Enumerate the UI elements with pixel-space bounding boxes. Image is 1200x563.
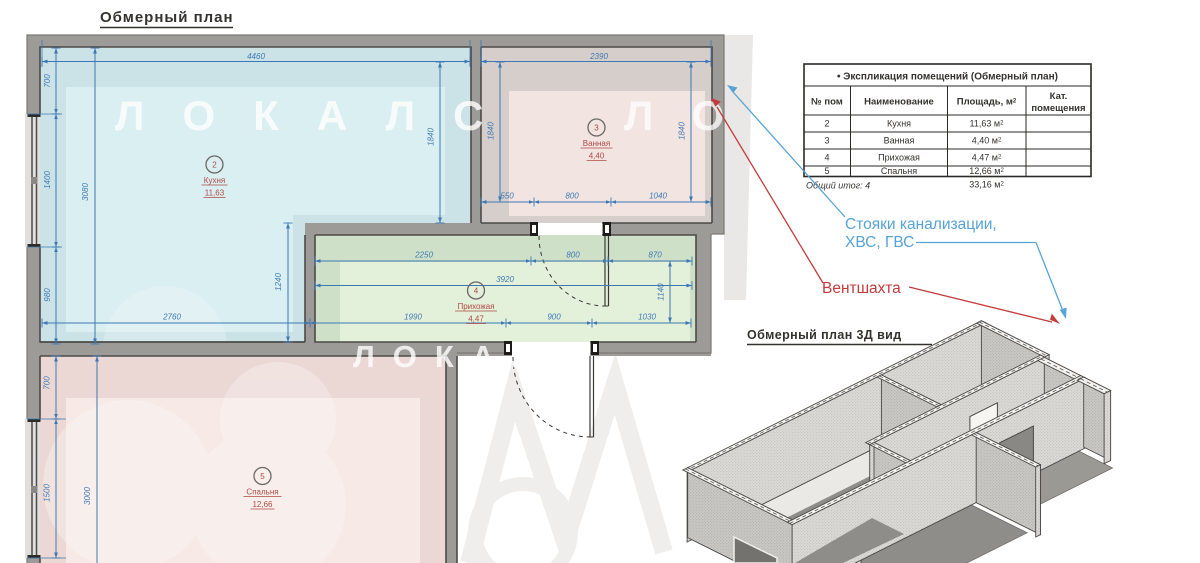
svg-text:550: 550 (500, 192, 514, 201)
svg-text:1030: 1030 (638, 313, 656, 322)
svg-text:3000: 3000 (83, 487, 92, 505)
svg-text:870: 870 (648, 251, 662, 260)
svg-text:2390: 2390 (589, 52, 608, 61)
svg-text:ЛОКАЛС: ЛОКАЛС (115, 92, 521, 139)
svg-text:12,66: 12,66 (252, 500, 273, 509)
svg-text:900: 900 (547, 313, 561, 322)
svg-text:1240: 1240 (274, 273, 283, 291)
svg-text:Спальня: Спальня (246, 488, 278, 497)
svg-text:4: 4 (824, 153, 829, 163)
svg-text:33,16 м2: 33,16 м2 (969, 180, 1004, 190)
svg-text:4,47: 4,47 (468, 315, 484, 324)
svg-text:№ пом: № пом (811, 97, 843, 108)
svg-text:3080: 3080 (81, 183, 90, 201)
svg-text:980: 980 (43, 288, 52, 302)
svg-text:3920: 3920 (496, 275, 514, 284)
svg-text:800: 800 (566, 251, 580, 260)
svg-text:• Экспликация помещений (Обмер: • Экспликация помещений (Обмерный план) (837, 71, 1058, 83)
svg-text:Кухня: Кухня (204, 176, 225, 185)
svg-text:помещения: помещения (1031, 103, 1085, 114)
svg-text:4,40 м2: 4,40 м2 (972, 136, 1002, 146)
svg-text:11,63: 11,63 (205, 189, 225, 198)
svg-text:ЛОКАЛС: ЛОКАЛС (353, 339, 593, 374)
svg-text:Кат.: Кат. (1050, 91, 1068, 102)
svg-text:Спальня: Спальня (881, 166, 917, 176)
svg-text:1990: 1990 (404, 313, 422, 322)
svg-text:Общий итог: 4: Общий итог: 4 (806, 181, 870, 191)
svg-text:ХВС, ГВС: ХВС, ГВС (845, 234, 914, 251)
svg-text:12,66 м2: 12,66 м2 (969, 166, 1004, 176)
svg-text:Обмерный план: Обмерный план (100, 9, 234, 26)
svg-text:Наименование: Наименование (864, 97, 934, 108)
svg-text:4460: 4460 (247, 52, 265, 61)
svg-text:5: 5 (824, 166, 829, 176)
svg-text:4,40: 4,40 (589, 152, 605, 161)
svg-text:Вентшахта: Вентшахта (822, 280, 901, 297)
svg-text:2250: 2250 (414, 251, 433, 260)
svg-text:3: 3 (594, 124, 599, 133)
svg-text:Прихожая: Прихожая (457, 302, 494, 311)
svg-text:700: 700 (43, 376, 52, 390)
svg-text:2: 2 (824, 119, 829, 129)
svg-text:1400: 1400 (43, 171, 52, 189)
svg-text:Площадь, м2: Площадь, м2 (957, 97, 1017, 108)
svg-text:5: 5 (260, 472, 265, 481)
svg-text:Ванная: Ванная (884, 136, 915, 146)
svg-text:Ванная: Ванная (583, 139, 610, 148)
svg-text:2760: 2760 (162, 313, 181, 322)
svg-text:4: 4 (474, 287, 479, 296)
svg-text:Кухня: Кухня (887, 119, 911, 129)
svg-text:Прихожая: Прихожая (878, 153, 920, 163)
svg-text:3: 3 (824, 136, 829, 146)
svg-text:11,63 м2: 11,63 м2 (970, 119, 1005, 129)
svg-text:1500: 1500 (43, 484, 52, 502)
svg-text:4,47 м2: 4,47 м2 (972, 153, 1002, 163)
svg-text:1040: 1040 (649, 192, 667, 201)
svg-text:1140: 1140 (657, 283, 666, 301)
svg-text:800: 800 (565, 192, 579, 201)
svg-text:2: 2 (212, 161, 217, 170)
svg-text:Обмерный план 3Д вид: Обмерный план 3Д вид (747, 328, 902, 342)
svg-text:Стояки канализации,: Стояки канализации, (845, 216, 997, 233)
svg-text:700: 700 (43, 74, 52, 88)
